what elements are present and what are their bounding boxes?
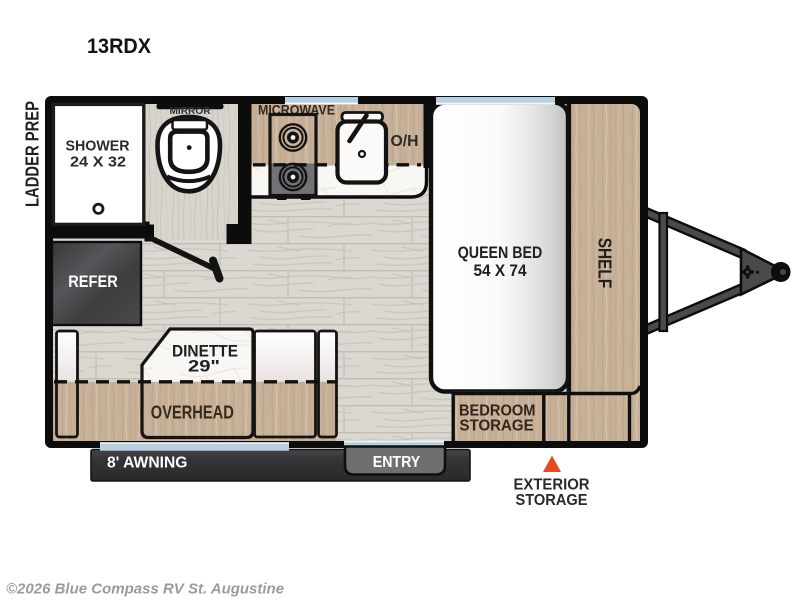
svg-text:SHELF: SHELF (595, 238, 615, 289)
svg-text:13RDX: 13RDX (87, 35, 151, 58)
svg-text:29": 29" (188, 358, 220, 376)
svg-text:54 X 74: 54 X 74 (474, 261, 527, 280)
svg-text:STORAGE: STORAGE (460, 418, 534, 435)
svg-text:QUEEN BED: QUEEN BED (458, 243, 543, 262)
svg-text:©2026 Blue Compass RV St. Augu: ©2026 Blue Compass RV St. Augustine (6, 581, 284, 598)
svg-text:LADDER PREP: LADDER PREP (23, 101, 43, 207)
svg-text:STORAGE: STORAGE (516, 492, 588, 509)
svg-text:REFER: REFER (68, 272, 118, 291)
svg-text:OVERHEAD: OVERHEAD (151, 403, 234, 423)
svg-text:ENTRY: ENTRY (373, 454, 421, 471)
svg-text:O/H: O/H (391, 133, 419, 150)
svg-text:24 X 32: 24 X 32 (70, 154, 126, 171)
svg-text:SHOWER: SHOWER (66, 138, 130, 155)
svg-text:8' AWNING: 8' AWNING (107, 455, 188, 472)
